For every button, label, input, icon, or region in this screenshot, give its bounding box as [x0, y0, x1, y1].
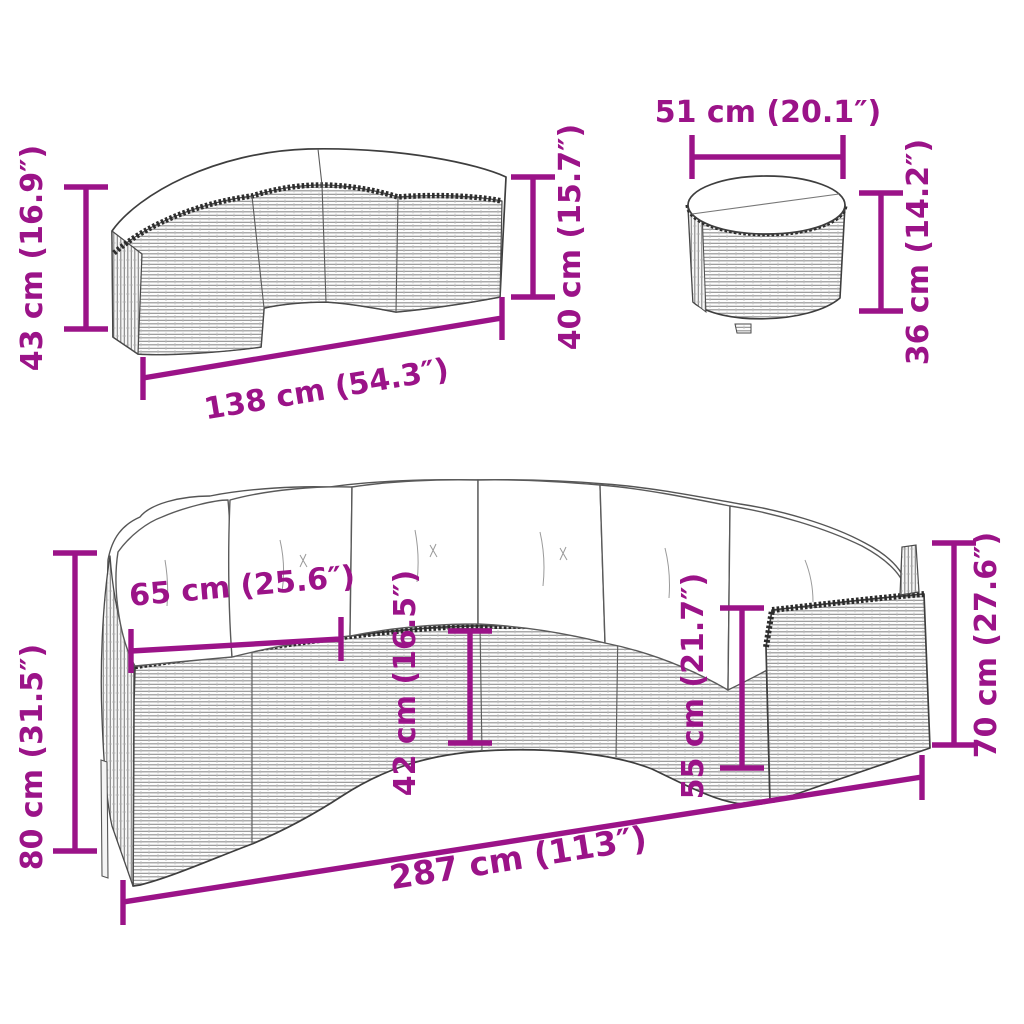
sofa-seat-wall — [133, 626, 770, 886]
bench-height-right-label: 40 cm (15.7″) — [553, 124, 588, 351]
bench-height-left-label: 43 cm (16.9″) — [15, 145, 50, 372]
bench-drawing — [112, 149, 506, 355]
sofa-left-leg — [101, 760, 108, 878]
dim-line-table-diameter — [692, 135, 843, 179]
sofa-seat-height-label: 55 cm (21.7″) — [676, 573, 711, 800]
sofa-right-arm — [766, 594, 930, 802]
sofa-drawing — [101, 480, 930, 886]
sofa-front-wall-label: 42 cm (16.5″) — [388, 570, 423, 797]
sofa-height-right-label: 70 cm (27.6″) — [969, 532, 1004, 759]
diagram-canvas: 43 cm (16.9″) 138 cm (54.3″) 40 cm (15.7… — [0, 0, 1024, 1024]
dim-line-bench-height-right — [511, 177, 555, 297]
dim-line-sofa-height-left — [53, 553, 97, 851]
dim-line-table-height — [859, 193, 903, 311]
cushion — [478, 480, 605, 643]
table-diameter-label: 51 cm (20.1″) — [655, 95, 882, 130]
dim-line-bench-height-left — [64, 187, 108, 329]
sofa-height-left-label: 80 cm (31.5″) — [15, 644, 50, 871]
sofa-width-label: 287 cm (113″) — [387, 818, 650, 897]
table-foot — [735, 324, 751, 333]
table-top — [688, 176, 845, 234]
product-dimension-diagram: 43 cm (16.9″) 138 cm (54.3″) 40 cm (15.7… — [0, 0, 1024, 1024]
table-height-label: 36 cm (14.2″) — [901, 139, 936, 366]
side-table-drawing — [688, 176, 845, 333]
sofa-right-arm-top-strip — [900, 545, 919, 595]
